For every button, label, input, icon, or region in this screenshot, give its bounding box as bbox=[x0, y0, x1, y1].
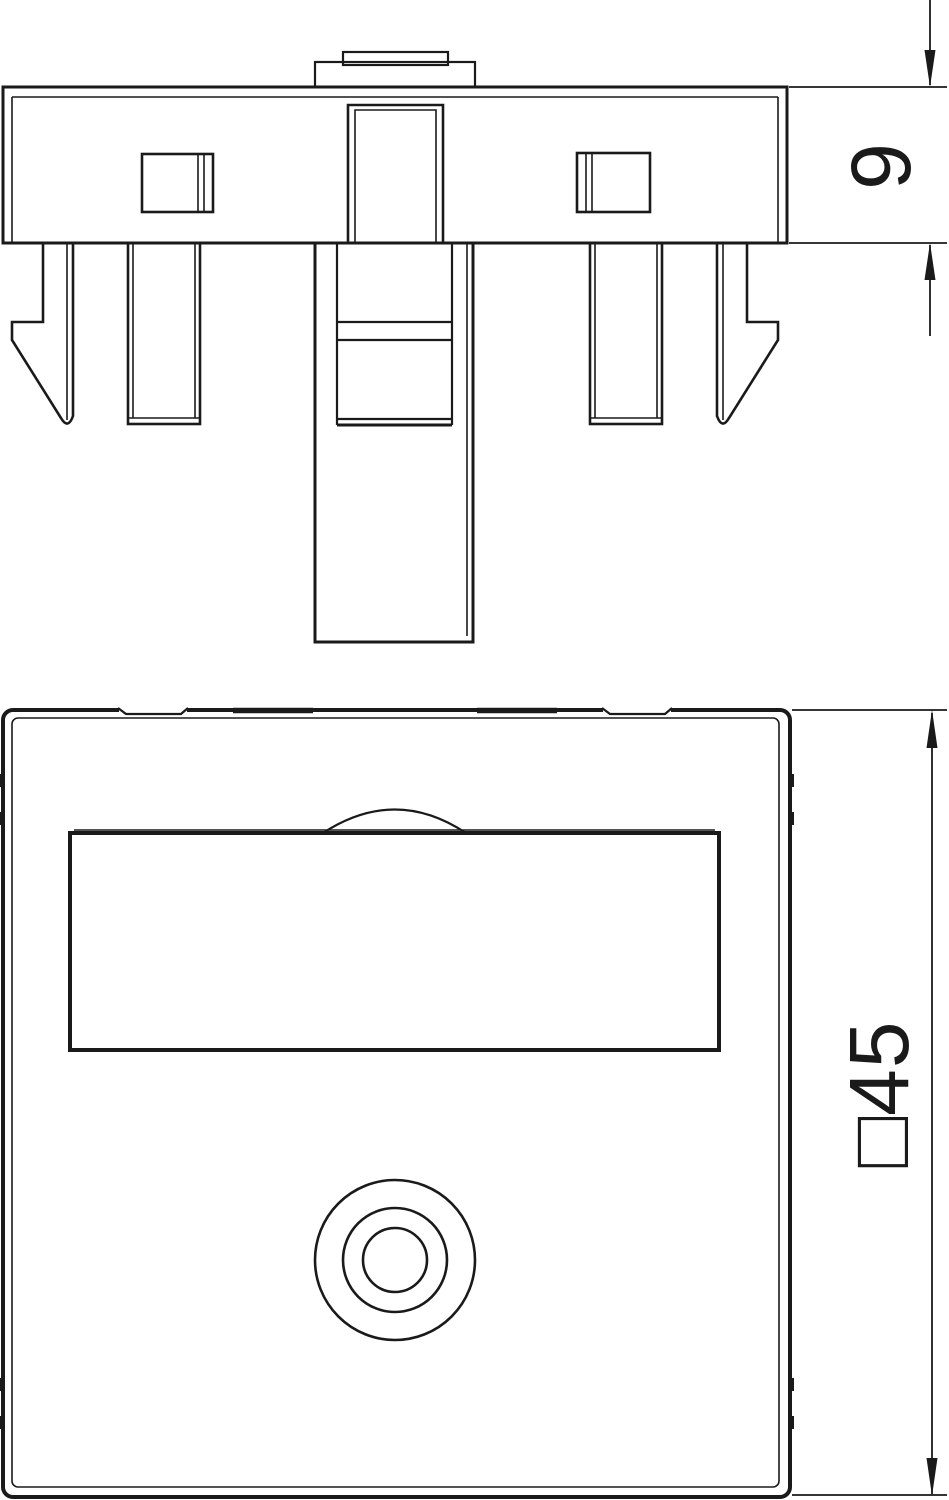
mounting-clip-left bbox=[12, 243, 73, 424]
arrowhead-down-icon bbox=[925, 50, 936, 87]
window-left-inner-lines bbox=[198, 154, 204, 212]
latch-nub-right-4 bbox=[789, 1416, 794, 1429]
window-left bbox=[142, 154, 213, 212]
front-view bbox=[0, 705, 794, 1497]
dimension-side-label: □45 bbox=[832, 1020, 926, 1167]
snap-leg-right bbox=[590, 243, 662, 424]
window-right bbox=[577, 153, 650, 212]
notch-patch-right bbox=[603, 705, 671, 714]
snap-leg-left-inner bbox=[128, 243, 200, 418]
center-slot-inner bbox=[355, 110, 436, 243]
socket-inner-ring bbox=[363, 1228, 427, 1292]
latch-nub-right-3 bbox=[789, 1378, 794, 1391]
window-right-inner-lines bbox=[586, 153, 592, 212]
latch-nub-left-1 bbox=[0, 774, 4, 787]
technical-drawing: 9 bbox=[0, 0, 949, 1500]
dimension-thickness-label: 9 bbox=[834, 142, 928, 190]
dimension-side: □45 bbox=[792, 710, 947, 1496]
snap-leg-left bbox=[128, 243, 200, 424]
center-slot bbox=[348, 105, 443, 243]
technical-drawing-page: 9 bbox=[0, 0, 949, 1500]
latch-nub-left-2 bbox=[0, 812, 4, 825]
socket-middle-ring bbox=[343, 1208, 447, 1312]
label-field bbox=[70, 833, 719, 1050]
arrowhead-up-icon bbox=[927, 710, 938, 748]
latch-nub-right-1 bbox=[789, 774, 794, 787]
latch-nub-left-4 bbox=[0, 1416, 4, 1429]
side-view bbox=[3, 52, 787, 642]
arrowhead-up-icon bbox=[925, 243, 936, 280]
socket-outer-ring bbox=[315, 1180, 475, 1340]
latch-nub-left-3 bbox=[0, 1378, 4, 1391]
dimension-thickness: 9 bbox=[789, 0, 947, 336]
center-leg bbox=[315, 243, 473, 642]
center-leg-tongue-sides bbox=[337, 243, 452, 425]
faceplate-outline bbox=[3, 710, 790, 1497]
audio-socket bbox=[315, 1180, 475, 1340]
center-leg-band bbox=[337, 322, 452, 340]
arrowhead-down-icon bbox=[927, 1458, 938, 1496]
notch-patch-left bbox=[119, 705, 187, 714]
mounting-clip-right bbox=[717, 243, 778, 424]
snap-leg-right-inner bbox=[590, 243, 662, 418]
latch-nub-right-2 bbox=[789, 812, 794, 825]
